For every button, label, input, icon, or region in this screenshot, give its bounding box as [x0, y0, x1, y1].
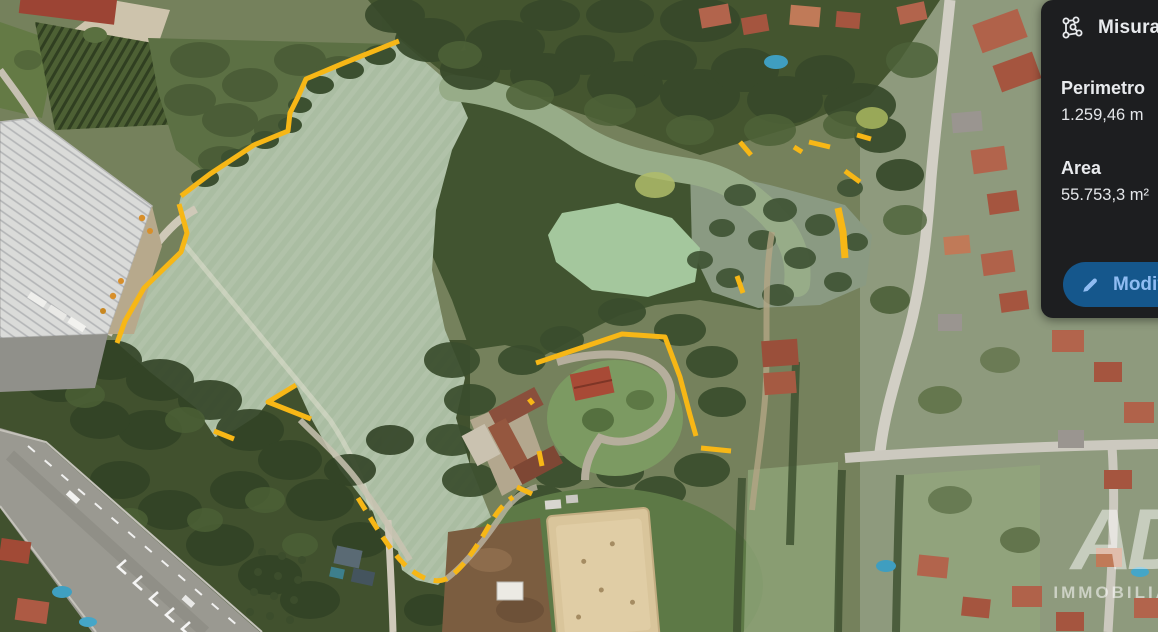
panel-title: Misura	[1098, 17, 1158, 39]
measure-panel-header: Misura	[1041, 0, 1158, 40]
app-window: AD IMMOBILIARE Misura Perimetro 1.259,46…	[0, 0, 1158, 632]
satellite-map[interactable]	[0, 0, 1158, 632]
area-value: 55.753,3 m²	[1061, 186, 1158, 205]
perimeter-metric: Perimetro 1.259,46 m	[1041, 78, 1158, 125]
edit-measurement-button[interactable]: Modifica	[1063, 262, 1158, 307]
perimeter-value: 1.259,46 m	[1061, 106, 1158, 125]
measure-panel: Misura Perimetro 1.259,46 m Area 55.753,…	[1041, 0, 1158, 318]
pencil-icon	[1081, 276, 1099, 294]
area-label: Area	[1061, 158, 1158, 179]
perimeter-label: Perimetro	[1061, 78, 1158, 99]
area-metric: Area 55.753,3 m²	[1041, 158, 1158, 205]
measure-polygon-icon	[1060, 16, 1084, 40]
edit-button-label: Modifica	[1113, 274, 1158, 296]
